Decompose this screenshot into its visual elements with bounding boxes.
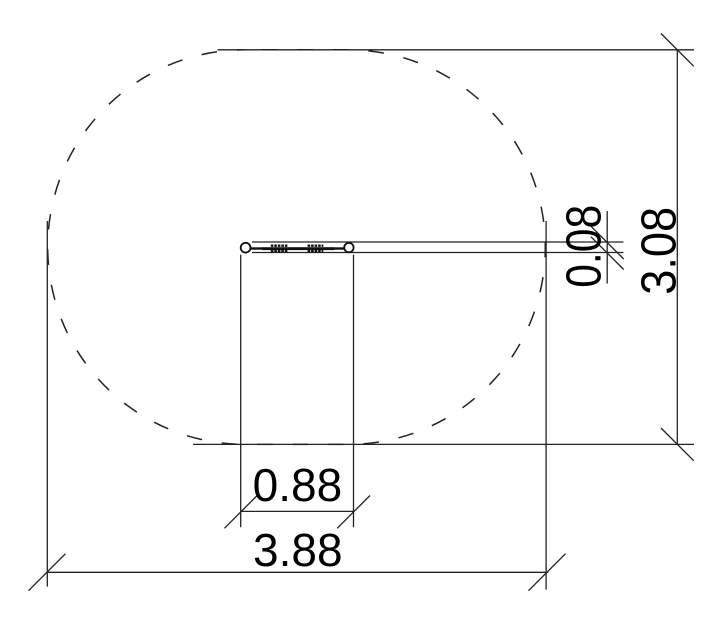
- svg-text:3.88: 3.88: [253, 524, 343, 576]
- svg-text:3.08: 3.08: [633, 207, 687, 295]
- svg-text:0.08: 0.08: [558, 205, 612, 288]
- svg-text:0.88: 0.88: [253, 459, 343, 511]
